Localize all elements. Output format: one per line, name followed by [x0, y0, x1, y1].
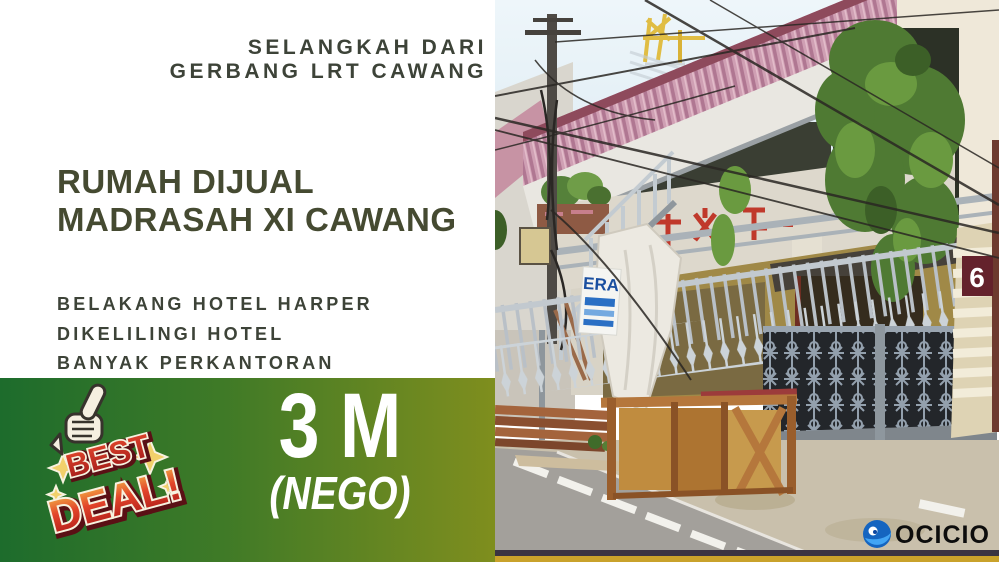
price-value: 3 M	[232, 378, 448, 474]
flyer-canvas: SELANGKAH DARI GERBANG LRT CAWANG RUMAH …	[0, 0, 999, 562]
feature-list: BELAKANG HOTEL HARPER DIKELILINGI HOTEL …	[57, 290, 373, 379]
feature-item: BELAKANG HOTEL HARPER	[57, 290, 373, 320]
title-line2: MADRASAH XI CAWANG	[57, 201, 457, 239]
tagline-line1: SELANGKAH DARI	[170, 36, 487, 60]
price-band: BEST BEST DEAL! DEAL! 3 M (NEGO)	[0, 378, 495, 562]
best-deal-badge: BEST BEST DEAL! DEAL!	[40, 382, 200, 558]
svg-text:OCICIO: OCICIO	[895, 521, 990, 549]
tagline: SELANGKAH DARI GERBANG LRT CAWANG	[170, 36, 487, 84]
property-photo: 6 ERA	[495, 0, 999, 562]
feature-item: DIKELILINGI HOTEL	[57, 320, 373, 350]
house-number-sign: 6	[962, 256, 993, 296]
listing-title: RUMAH DIJUAL MADRASAH XI CAWANG	[57, 163, 457, 239]
bottom-strip-gold	[495, 556, 999, 562]
bottom-strip-dark	[495, 550, 999, 556]
left-panel: SELANGKAH DARI GERBANG LRT CAWANG RUMAH …	[0, 0, 495, 562]
title-line1: RUMAH DIJUAL	[57, 163, 457, 201]
svg-text:6: 6	[969, 262, 985, 293]
price-note: (NEGO)	[225, 468, 455, 518]
electrical-box	[520, 228, 550, 264]
ocicio-watermark: OCICIO	[863, 520, 990, 549]
svg-text:ERA: ERA	[583, 274, 620, 295]
tagline-line2: GERBANG LRT CAWANG	[170, 60, 487, 84]
